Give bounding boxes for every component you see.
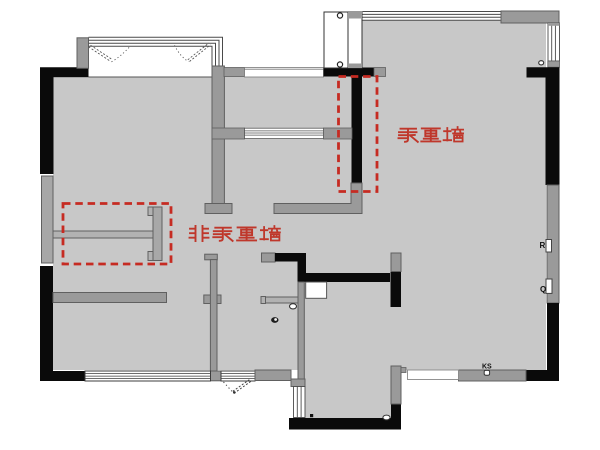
svg-text:R: R <box>540 241 546 250</box>
svg-text:KS: KS <box>482 364 492 371</box>
svg-text:Q: Q <box>540 285 546 294</box>
